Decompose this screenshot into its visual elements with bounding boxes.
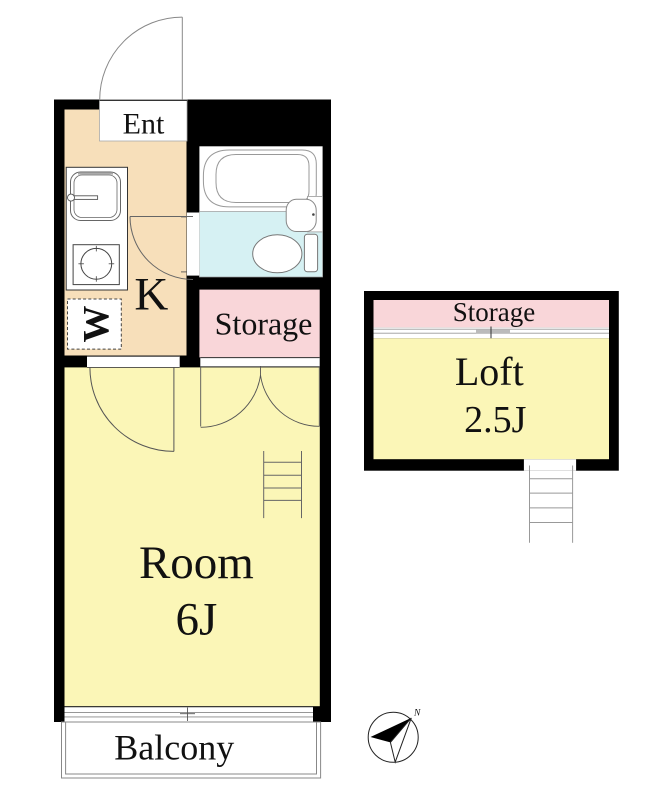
svg-text:K: K xyxy=(134,269,168,321)
svg-text:N: N xyxy=(413,709,421,719)
svg-text:Storage: Storage xyxy=(453,297,535,327)
svg-text:2.5J: 2.5J xyxy=(464,399,526,441)
svg-text:Balcony: Balcony xyxy=(114,727,234,767)
svg-text:6J: 6J xyxy=(176,594,218,646)
svg-text:Room: Room xyxy=(139,537,254,589)
svg-text:Loft: Loft xyxy=(455,349,524,394)
svg-text:Storage: Storage xyxy=(215,305,313,341)
svg-text:W: W xyxy=(77,306,118,343)
svg-text:Ent: Ent xyxy=(123,107,165,140)
